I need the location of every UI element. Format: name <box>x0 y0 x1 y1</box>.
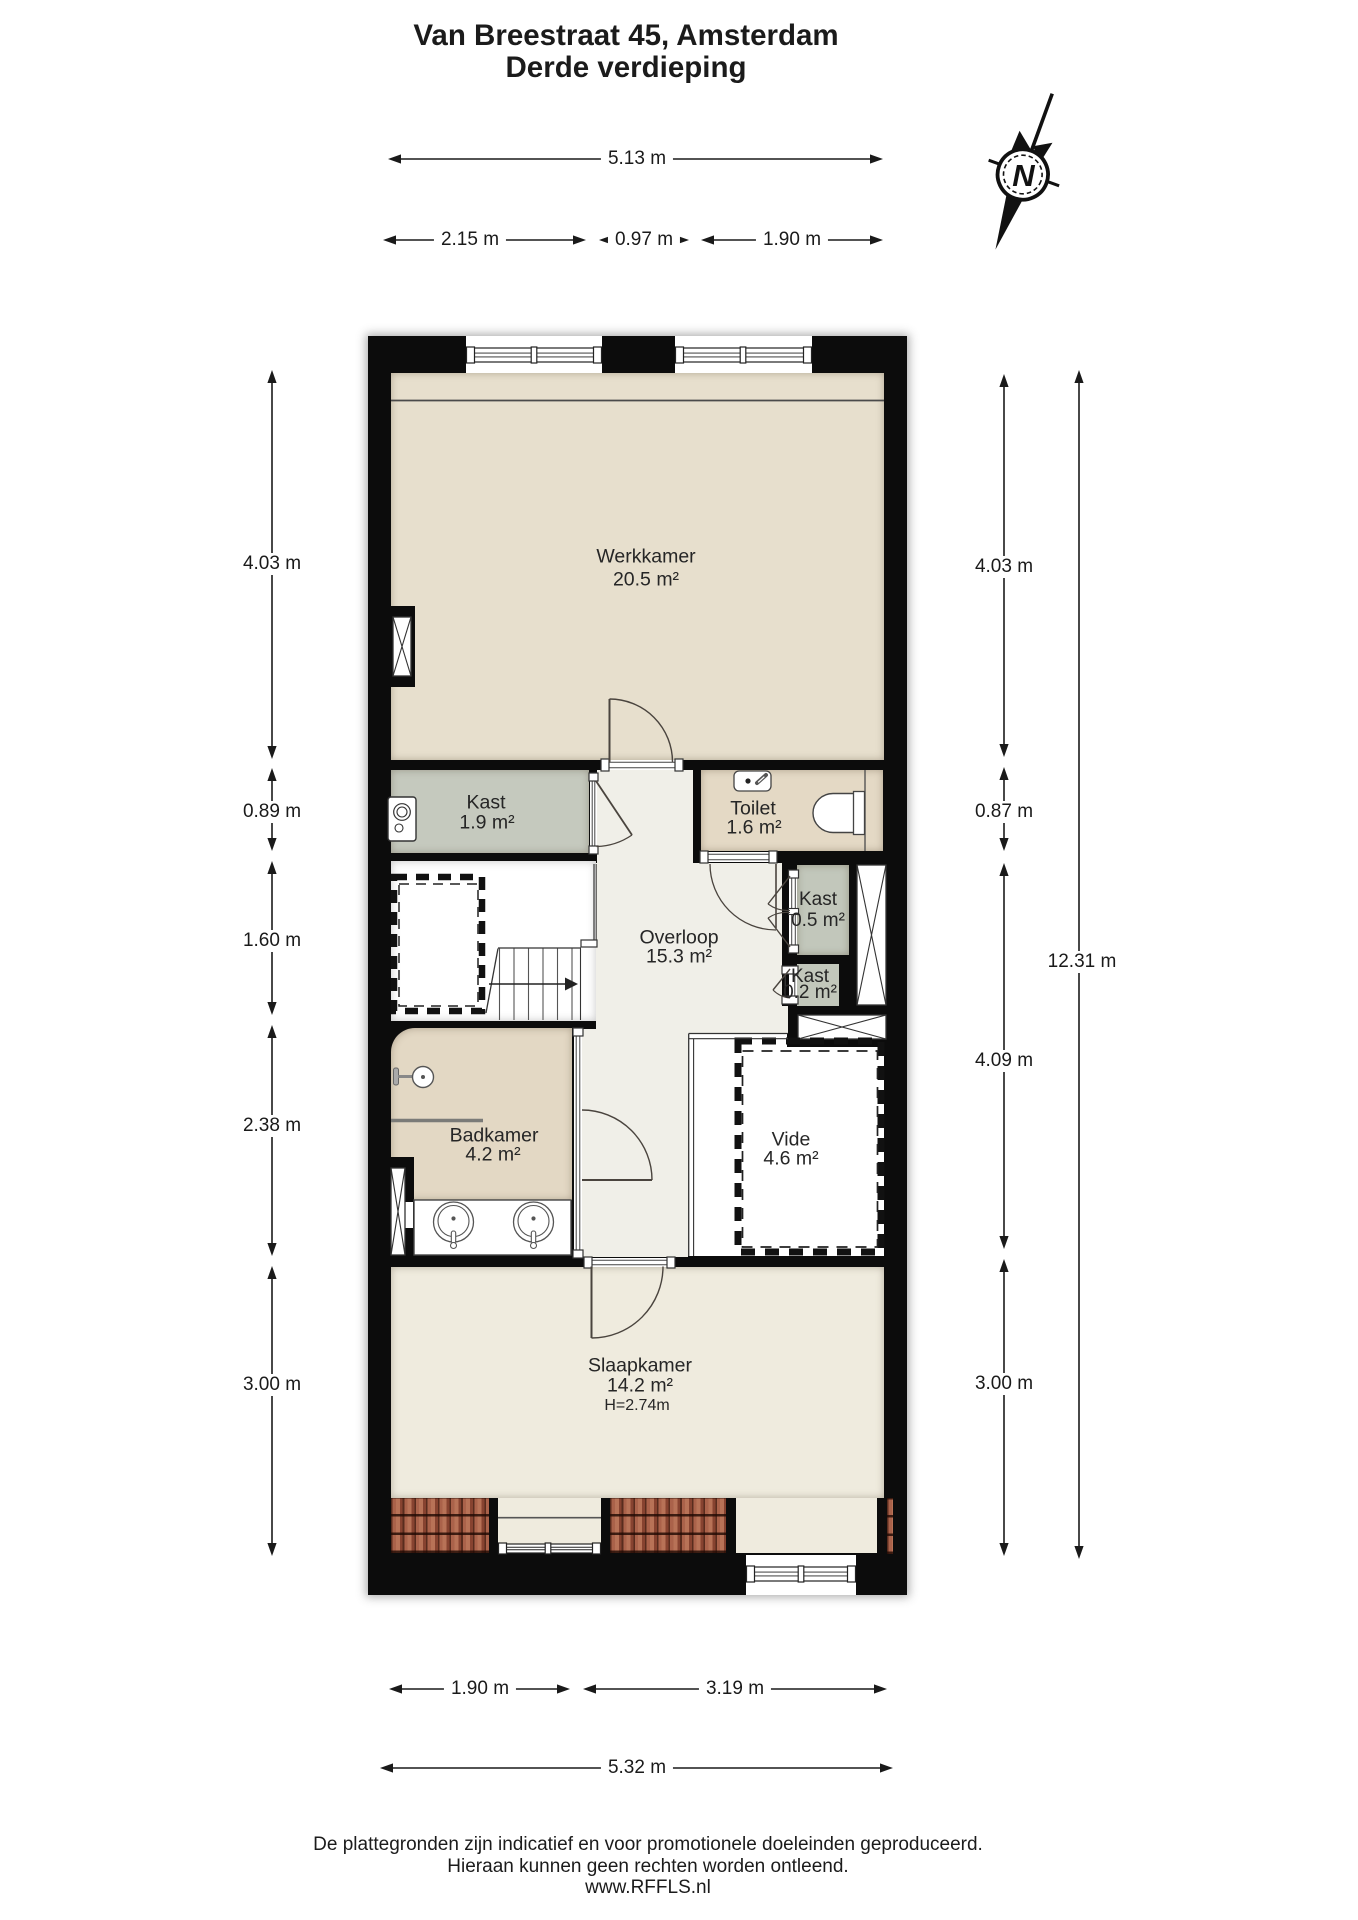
svg-text:N: N <box>1012 158 1035 193</box>
